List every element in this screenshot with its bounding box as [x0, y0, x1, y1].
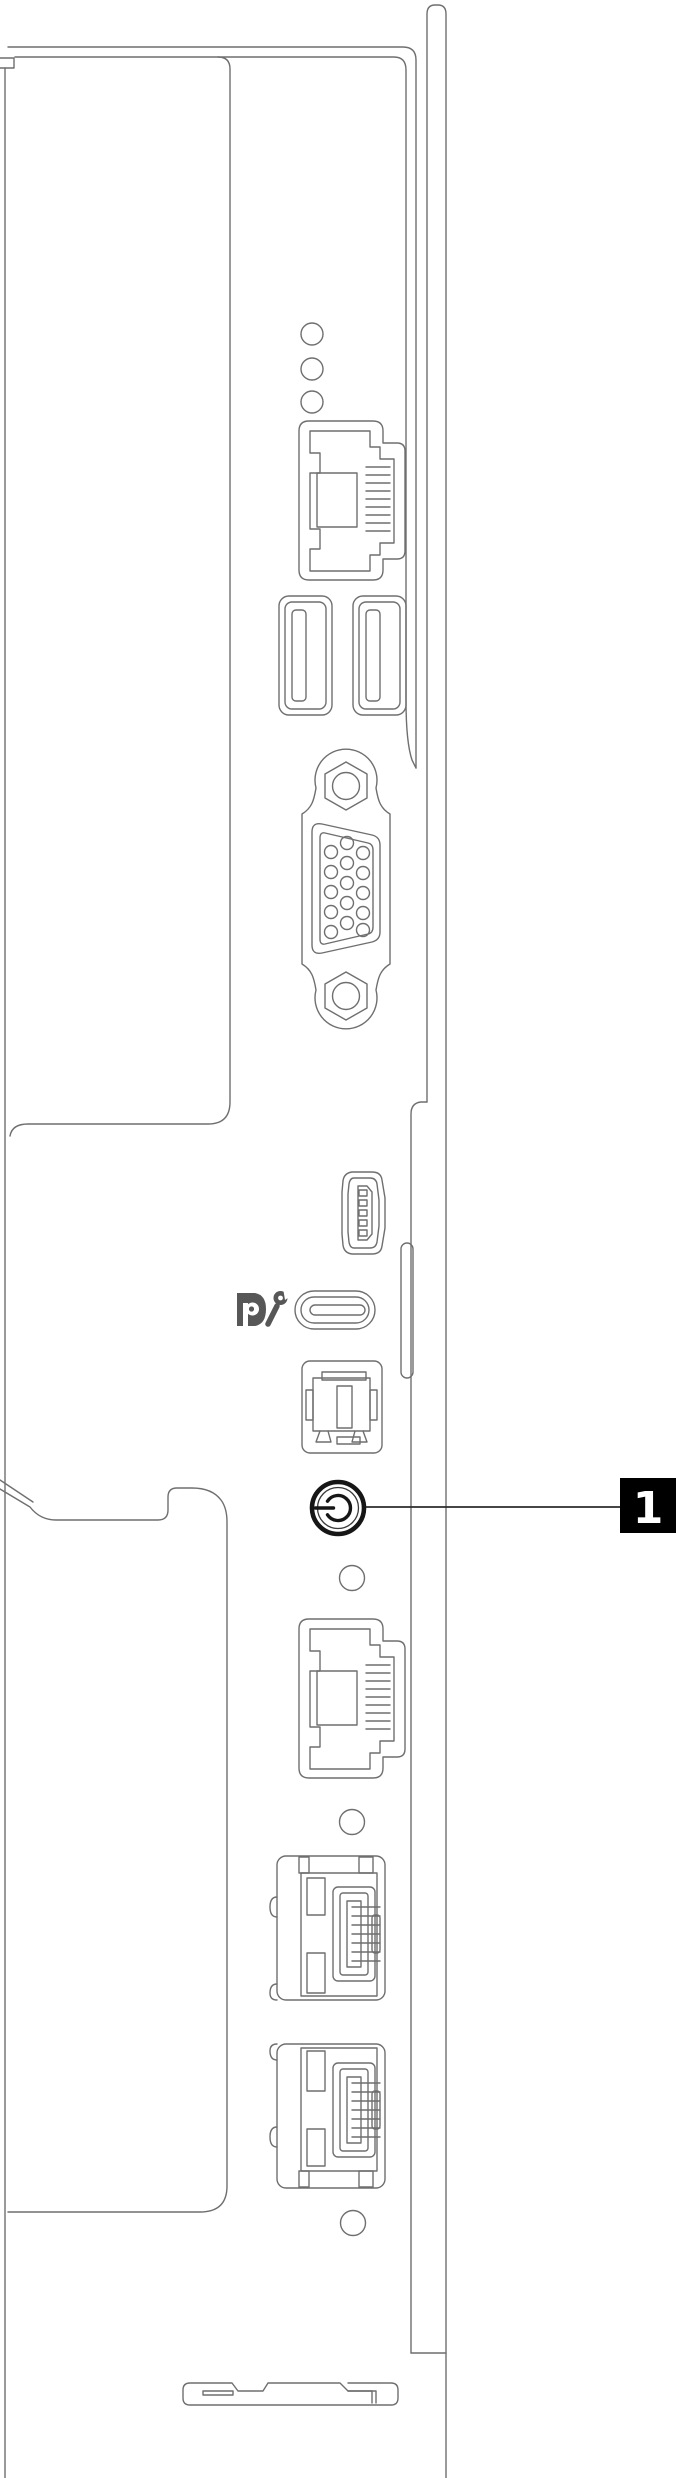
displayport-logo-icon	[237, 1293, 266, 1326]
usb-c-displayport	[295, 1291, 375, 1329]
screw-nut-top	[325, 762, 367, 810]
hole-2	[340, 1810, 365, 1835]
usb-a-port-2	[353, 596, 406, 715]
mini-usb-port	[342, 1172, 385, 1254]
vga-pins	[325, 837, 370, 939]
network-port-1	[270, 1856, 385, 2000]
hole-3	[341, 2211, 366, 2236]
led-3	[301, 391, 323, 413]
hole-1	[340, 1566, 365, 1591]
status-leds	[301, 323, 323, 413]
callout-1-number: 1	[633, 1483, 664, 1534]
upper-cover-panel	[10, 57, 230, 1136]
screw-top	[333, 773, 360, 800]
callout-1: 1	[620, 1478, 676, 1534]
screw-nut-bottom	[325, 972, 367, 1020]
ethernet-port-top	[299, 421, 405, 580]
led-2	[301, 358, 323, 380]
lower-cover-panel	[0, 1488, 227, 2212]
chassis-outline	[0, 5, 446, 2478]
usb-a-port-1	[279, 596, 332, 715]
ethernet-port-middle	[299, 1619, 405, 1778]
screw-bottom	[333, 983, 360, 1010]
power-icon	[316, 1495, 351, 1520]
power-button	[312, 1482, 364, 1534]
led-1	[301, 323, 323, 345]
vga-port	[302, 749, 390, 1029]
network-port-2	[270, 2044, 385, 2188]
bottom-latch	[183, 2383, 398, 2405]
front-panel-diagram: 1	[0, 0, 676, 2478]
box-connector	[302, 1361, 382, 1453]
wrench-icon	[268, 1288, 292, 1324]
